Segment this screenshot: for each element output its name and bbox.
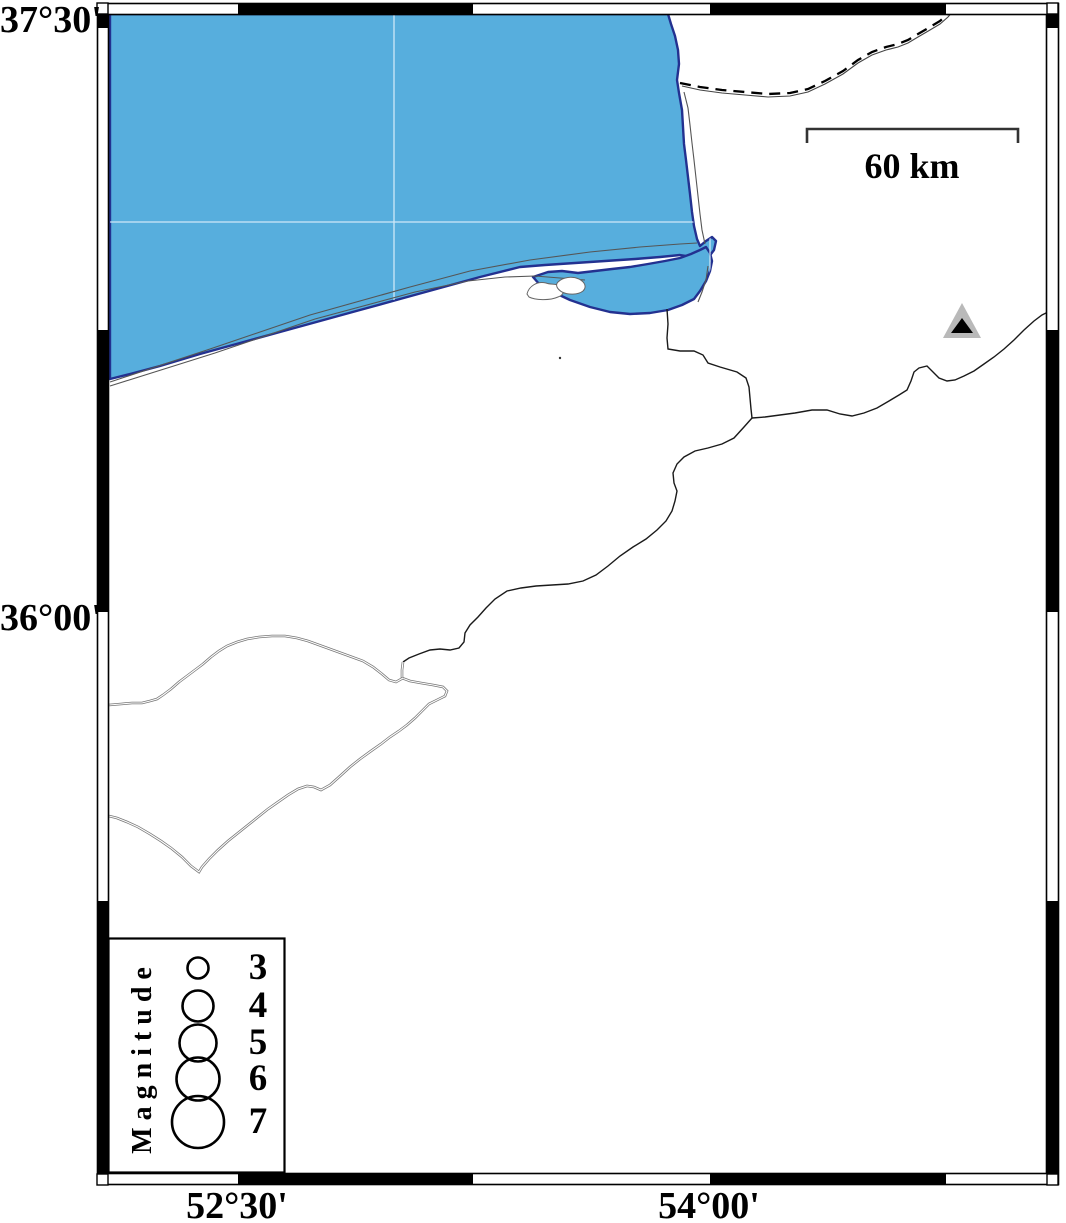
lagoon-outline: [557, 277, 585, 294]
legend-label-m3: 3: [234, 947, 282, 989]
river-from-bay: [667, 309, 752, 418]
border-dashed-line: [680, 2, 958, 94]
legend-title: Magnitude: [127, 960, 159, 1154]
river-southwest: [403, 418, 752, 662]
islet-dot: [559, 357, 561, 359]
boundary-arc: [109, 636, 403, 705]
legend-label-m6: 6: [234, 1058, 282, 1100]
axis-label-lon-left: 52°30': [127, 1186, 347, 1223]
axis-label-lon-right: 54°00': [599, 1186, 819, 1223]
station-marker: [943, 303, 981, 338]
sea-caspian: [110, 14, 716, 379]
scale-bar: [807, 129, 1018, 143]
axis-label-lat-top: 37°30': [0, 0, 90, 40]
scale-bar-label: 60 km: [802, 145, 1022, 187]
boundary-loop: [109, 662, 447, 872]
axis-label-lat-mid: 36°00': [0, 598, 90, 638]
legend-label-m4: 4: [234, 985, 282, 1027]
map-figure: 37°30' 36°00' 52°30' 54°00' 60 km Magnit…: [0, 0, 1066, 1223]
river-northeast: [752, 312, 1048, 418]
border-solid-line: [682, 5, 958, 97]
legend-label-m7: 7: [234, 1101, 282, 1143]
